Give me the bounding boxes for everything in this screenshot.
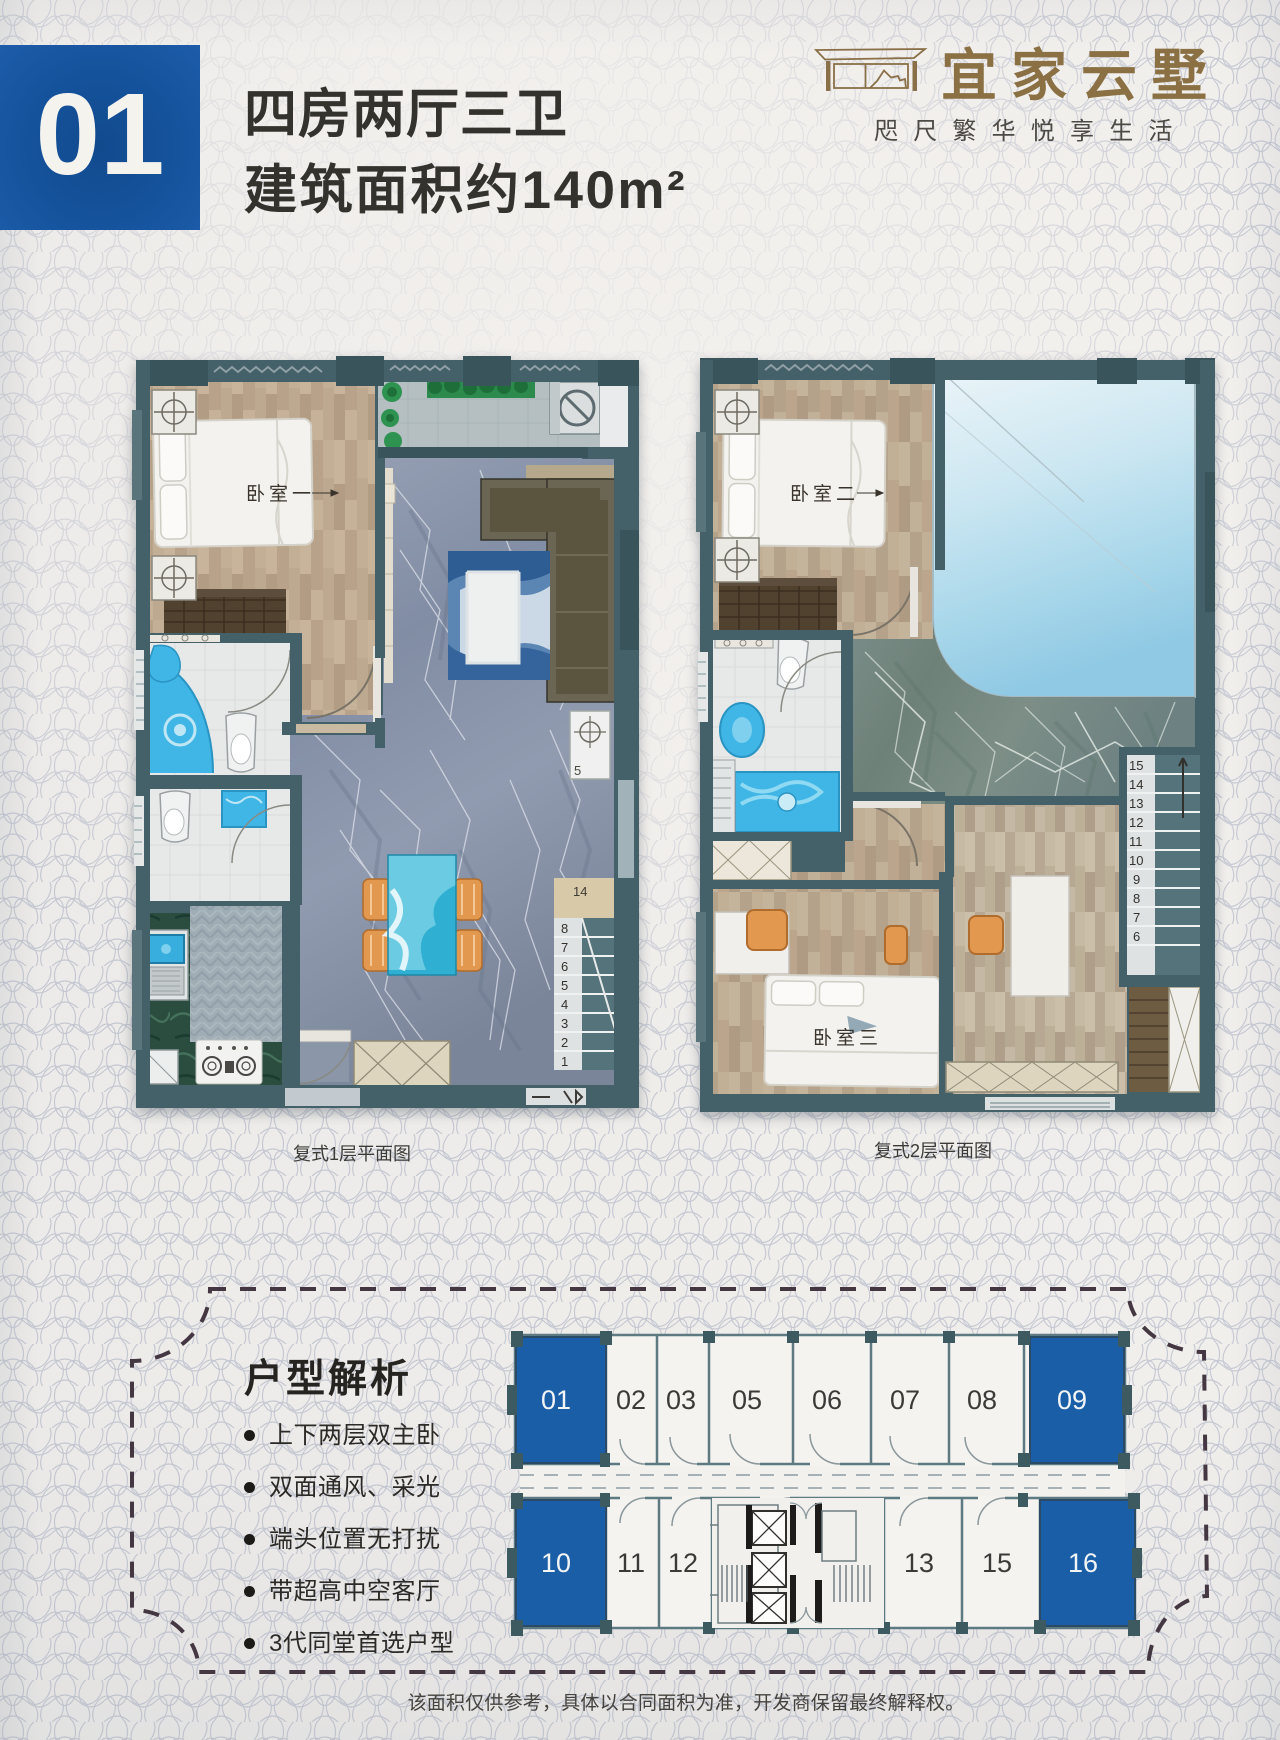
- svg-text:10: 10: [1129, 853, 1143, 868]
- svg-text:09: 09: [1057, 1385, 1087, 1415]
- svg-text:11: 11: [617, 1548, 645, 1578]
- svg-text:5: 5: [574, 763, 581, 778]
- svg-text:8: 8: [561, 921, 568, 936]
- svg-text:9: 9: [1133, 872, 1140, 887]
- svg-text:5: 5: [561, 978, 568, 993]
- svg-text:14: 14: [1129, 777, 1143, 792]
- svg-text:卧室二: 卧室二: [790, 483, 859, 505]
- svg-text:14: 14: [573, 884, 587, 899]
- svg-text:2: 2: [561, 1035, 568, 1050]
- svg-text:01: 01: [541, 1385, 571, 1415]
- svg-text:13: 13: [904, 1548, 934, 1578]
- svg-text:卧室一: 卧室一: [246, 483, 315, 505]
- svg-text:15: 15: [982, 1548, 1012, 1578]
- svg-text:7: 7: [1133, 910, 1140, 925]
- svg-text:16: 16: [1068, 1548, 1098, 1578]
- svg-text:05: 05: [732, 1385, 762, 1415]
- svg-text:11: 11: [1129, 834, 1143, 849]
- svg-text:1: 1: [561, 1054, 568, 1069]
- svg-text:6: 6: [1133, 929, 1140, 944]
- svg-text:08: 08: [967, 1385, 997, 1415]
- svg-text:02: 02: [616, 1385, 646, 1415]
- svg-text:03: 03: [666, 1385, 696, 1415]
- svg-text:3: 3: [561, 1016, 568, 1031]
- svg-text:8: 8: [1133, 891, 1140, 906]
- svg-text:12: 12: [1129, 815, 1143, 830]
- svg-text:卧室三: 卧室三: [813, 1027, 882, 1049]
- svg-text:07: 07: [890, 1385, 920, 1415]
- svg-text:4: 4: [561, 997, 568, 1012]
- svg-text:6: 6: [561, 959, 568, 974]
- svg-text:10: 10: [541, 1548, 571, 1578]
- svg-text:13: 13: [1129, 796, 1143, 811]
- svg-text:06: 06: [812, 1385, 842, 1415]
- svg-text:12: 12: [668, 1548, 698, 1578]
- svg-text:7: 7: [561, 940, 568, 955]
- svg-text:15: 15: [1129, 758, 1143, 773]
